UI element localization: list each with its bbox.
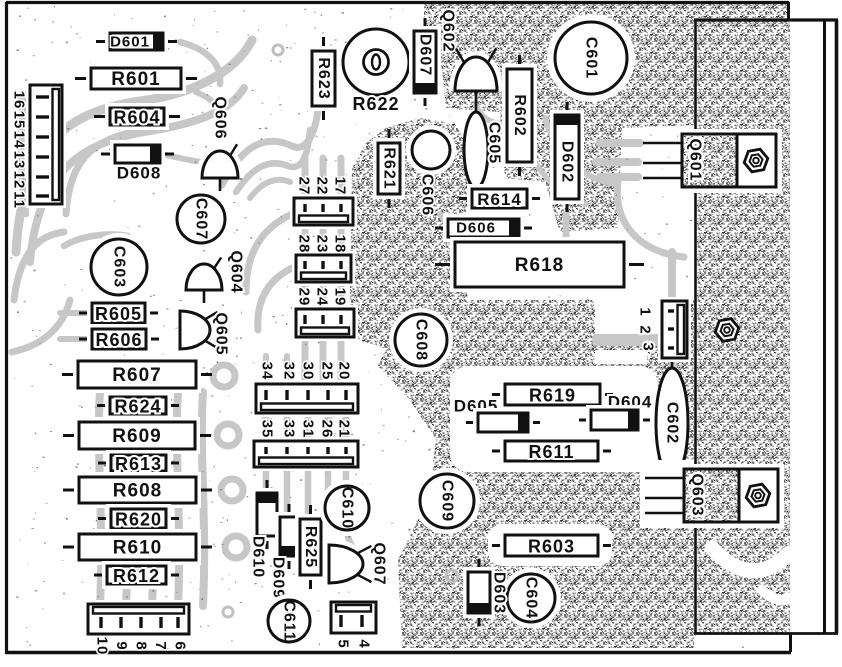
svg-text:R622: R622: [352, 94, 399, 114]
svg-text:4: 4: [356, 639, 373, 648]
svg-text:C605: C605: [486, 122, 503, 164]
svg-text:R602: R602: [511, 94, 528, 136]
svg-text:R609: R609: [112, 426, 161, 447]
svg-text:28: 28: [296, 235, 313, 254]
svg-text:27: 27: [296, 177, 313, 196]
svg-text:14: 14: [11, 131, 28, 150]
svg-text:D607: D607: [417, 34, 434, 76]
svg-text:R601: R601: [111, 69, 160, 90]
svg-text:D601: D601: [110, 34, 150, 51]
svg-text:1: 1: [637, 307, 654, 316]
svg-text:R608: R608: [113, 481, 162, 502]
svg-text:C608: C608: [413, 319, 430, 361]
svg-text:D602: D602: [559, 141, 576, 183]
svg-text:7: 7: [152, 641, 169, 650]
svg-text:22: 22: [314, 177, 331, 196]
svg-text:D610: D610: [250, 536, 267, 578]
svg-text:C602: C602: [664, 402, 681, 444]
svg-text:R621: R621: [381, 147, 398, 189]
svg-text:3: 3: [640, 342, 657, 351]
svg-text:21: 21: [336, 420, 353, 439]
svg-text:12: 12: [11, 171, 28, 190]
svg-text:C609: C609: [439, 480, 456, 522]
svg-text:R624: R624: [114, 397, 161, 417]
svg-text:30: 30: [300, 362, 317, 381]
svg-text:11: 11: [11, 191, 28, 209]
svg-text:R603: R603: [528, 537, 575, 557]
svg-text:R611: R611: [528, 442, 574, 462]
svg-text:6: 6: [172, 641, 189, 650]
svg-text:23: 23: [314, 235, 331, 254]
svg-text:33: 33: [281, 420, 298, 439]
svg-text:R604: R604: [113, 108, 160, 128]
svg-text:10: 10: [94, 637, 111, 656]
svg-text:19: 19: [332, 288, 349, 307]
svg-text:Q604: Q604: [228, 250, 245, 293]
svg-text:26: 26: [319, 420, 336, 439]
svg-text:15: 15: [11, 111, 28, 130]
svg-text:R618: R618: [515, 255, 564, 276]
svg-text:29: 29: [296, 288, 313, 307]
svg-text:Q607: Q607: [371, 542, 388, 585]
svg-text:R612: R612: [113, 566, 160, 586]
svg-text:31: 31: [300, 420, 317, 439]
svg-text:24: 24: [314, 288, 331, 307]
svg-text:R606: R606: [95, 330, 142, 350]
svg-text:18: 18: [332, 235, 349, 254]
svg-text:C610: C610: [339, 487, 356, 529]
svg-text:R613: R613: [115, 454, 162, 474]
svg-text:D609: D609: [270, 557, 287, 599]
svg-text:Q602: Q602: [440, 9, 457, 52]
svg-text:R619: R619: [529, 386, 576, 406]
svg-text:R620: R620: [115, 510, 162, 530]
svg-text:R623: R623: [315, 57, 332, 99]
svg-text:16: 16: [11, 91, 28, 110]
svg-text:R610: R610: [113, 538, 162, 559]
svg-text:5: 5: [335, 639, 352, 648]
svg-text:C611: C611: [281, 600, 298, 641]
svg-text:C603: C603: [111, 246, 128, 288]
svg-text:32: 32: [281, 362, 298, 381]
svg-text:20: 20: [336, 362, 353, 381]
svg-text:R625: R625: [302, 526, 319, 568]
svg-text:C607: C607: [193, 198, 210, 240]
svg-text:R605: R605: [95, 304, 142, 324]
svg-text:Q603: Q603: [689, 473, 706, 516]
svg-text:C604: C604: [523, 577, 540, 619]
svg-text:C606: C606: [419, 174, 436, 216]
svg-text:Q606: Q606: [212, 96, 229, 139]
svg-text:Q605: Q605: [213, 312, 230, 355]
svg-text:8: 8: [133, 641, 150, 650]
svg-text:2: 2: [637, 325, 654, 334]
svg-text:C601: C601: [583, 37, 600, 79]
svg-text:R607: R607: [112, 365, 161, 386]
svg-text:D606: D606: [456, 220, 496, 237]
svg-text:34: 34: [259, 362, 276, 381]
svg-text:R614: R614: [477, 190, 522, 209]
svg-text:25: 25: [319, 362, 336, 381]
svg-text:13: 13: [11, 151, 28, 170]
svg-text:17: 17: [332, 177, 349, 196]
svg-text:35: 35: [259, 420, 276, 439]
svg-text:Q601: Q601: [687, 138, 704, 181]
svg-text:9: 9: [113, 641, 130, 650]
svg-text:D603: D603: [491, 572, 508, 614]
svg-text:D608: D608: [117, 164, 162, 183]
